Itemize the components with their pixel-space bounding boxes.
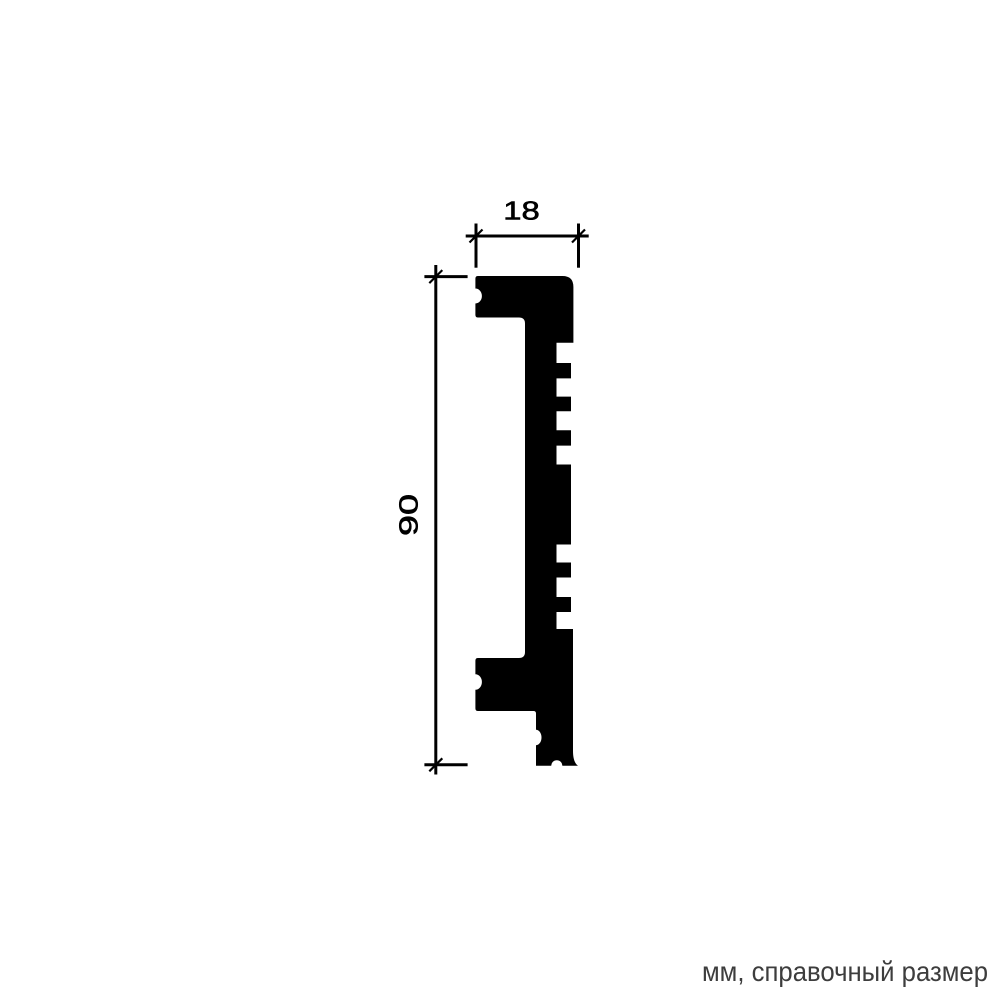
svg-text:18: 18 xyxy=(503,196,540,226)
svg-text:90: 90 xyxy=(393,494,423,536)
svg-text:мм, справочный размер: мм, справочный размер xyxy=(702,956,988,987)
